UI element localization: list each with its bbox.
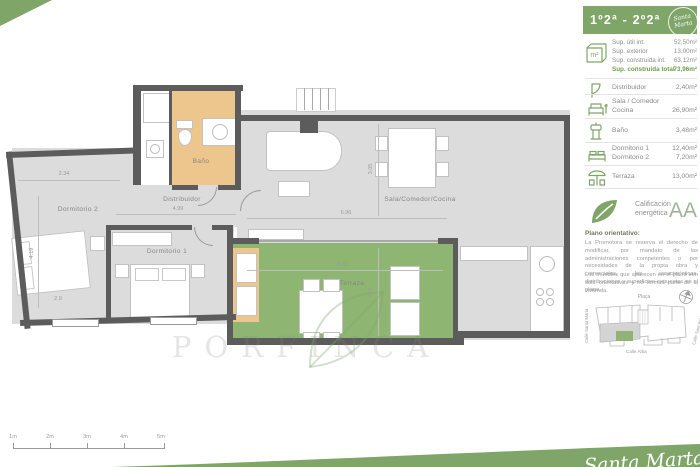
- energy-label: Calificación: [635, 201, 671, 208]
- dimension-label: 4.70: [337, 262, 348, 268]
- nightstand: [90, 236, 105, 251]
- wall-pillar: [300, 121, 318, 133]
- wall: [212, 225, 232, 230]
- window: [150, 317, 197, 325]
- room-row-value: 3,48m²: [655, 127, 697, 134]
- stove-burner: [536, 298, 544, 306]
- surface-value: 52,50m²: [655, 39, 697, 46]
- coffee-table: [278, 181, 310, 197]
- bed-dorm1: [130, 264, 190, 321]
- compass-icon: [680, 291, 693, 304]
- door-icon: [586, 80, 606, 100]
- divider: [585, 142, 697, 143]
- room-row-value: 2,40m²: [655, 84, 697, 91]
- surface-value: 13,00m²: [655, 48, 697, 55]
- dimension-line: [247, 270, 443, 271]
- nightstand: [115, 264, 129, 278]
- wall: [456, 331, 570, 338]
- room-row-value: 26,90m²: [655, 107, 697, 114]
- wall: [218, 185, 241, 190]
- room-row-value: 12,40m²: [655, 145, 697, 152]
- surface-value: 63,12m²: [655, 57, 697, 64]
- room-label-dormitorio2: Dormitorio 2: [58, 206, 98, 213]
- scale-label: 2m: [41, 434, 59, 440]
- surface-value-total: 73,96m²: [655, 66, 697, 73]
- sofa-icon: [586, 98, 608, 118]
- divider: [585, 188, 697, 189]
- svg-text:m²: m²: [590, 52, 599, 59]
- wall: [453, 243, 458, 338]
- wall: [235, 85, 241, 190]
- location-map: Plaça Calle Santa Marta Calle Sant Anton…: [582, 287, 700, 371]
- dining-chair: [375, 136, 388, 151]
- stairs: [296, 88, 336, 112]
- surface-label: Sup. exterior: [612, 48, 648, 55]
- dimension-line: [38, 196, 39, 308]
- dimension-label: 2.9: [54, 296, 62, 302]
- dimension-label: 3.05: [368, 164, 374, 175]
- nightstand: [191, 264, 205, 278]
- pillow: [135, 268, 159, 281]
- sink-basin: [212, 124, 228, 140]
- scale-label: 5m: [152, 434, 170, 440]
- wall: [564, 115, 570, 338]
- stair-tread: [320, 88, 321, 110]
- wardrobe-dorm1: [112, 232, 172, 246]
- wall: [233, 238, 259, 244]
- divider: [585, 94, 697, 95]
- map-street-left: Calle Santa Marta: [584, 308, 589, 343]
- kitchen-cabinet: [460, 246, 528, 261]
- room-row-name: Baño: [612, 127, 628, 134]
- energy-rating: AA: [669, 199, 697, 223]
- note-title: Plano orientativo:: [585, 230, 640, 237]
- wall: [106, 225, 111, 323]
- energy-label: energética: [635, 210, 668, 217]
- map-street-bottom: Calle Alba: [626, 349, 647, 354]
- room-row-name2: Cocina: [612, 107, 633, 114]
- wall: [169, 91, 172, 185]
- scale-label: 1m: [4, 434, 22, 440]
- shower: [143, 93, 170, 123]
- room-row-name: Sala / Comedor: [612, 98, 659, 105]
- stair-tread: [312, 88, 313, 110]
- dimension-line: [18, 180, 120, 181]
- room-row-name2: Dormitorio 2: [612, 154, 649, 161]
- stove-burner: [536, 288, 544, 296]
- wall: [133, 85, 243, 91]
- room-row-name: Distribuidor: [612, 84, 646, 91]
- dimension-label: 6.96: [341, 210, 352, 216]
- room-label-dormitorio1: Dormitorio 1: [147, 248, 187, 255]
- watermark-text: PORFINCA: [172, 330, 441, 364]
- room-row-name: Terraza: [612, 173, 635, 180]
- dimension-line: [378, 124, 379, 216]
- stair-tread: [328, 88, 329, 110]
- dimension-label: 4.19: [29, 248, 35, 259]
- floorplan-page: Dormitorio 2 Dormitorio 1 Distribuidor B…: [0, 0, 700, 467]
- dimension-label: 4.99: [173, 206, 184, 212]
- room-row-value: 13,00m²: [655, 173, 697, 180]
- wall: [133, 85, 141, 185]
- washbasin-icon: [586, 122, 606, 144]
- stove-burner: [546, 298, 554, 306]
- dining-table: [388, 128, 436, 188]
- wall: [172, 185, 198, 190]
- divider: [585, 78, 697, 79]
- room-label-bano: Baño: [193, 158, 210, 165]
- washer-drum: [150, 144, 160, 154]
- map-terrace-highlight: [616, 331, 633, 341]
- divider: [585, 165, 697, 166]
- pillow: [162, 268, 186, 281]
- dining-chair: [375, 162, 388, 177]
- window: [52, 319, 99, 327]
- room-label-distribuidor: Distribuidor: [163, 196, 201, 203]
- corner-ribbon: [0, 0, 52, 26]
- closet-box: [236, 253, 257, 283]
- room-row-name: Dormitorio 1: [612, 145, 649, 152]
- m2-icon: m²: [585, 42, 607, 66]
- sofa: [266, 131, 342, 171]
- energy-leaf-icon: [588, 196, 620, 226]
- divider: [585, 118, 697, 119]
- unit-title: 1º2ª - 2º2ª: [590, 13, 661, 27]
- parasol-icon: [586, 168, 608, 190]
- scale-label: 4m: [115, 434, 133, 440]
- dimension-line: [247, 218, 447, 219]
- room-row-value2: 7,20m²: [655, 154, 697, 161]
- dimension-line: [116, 214, 236, 215]
- toilet-tank: [176, 120, 193, 129]
- map-stair-core: [638, 310, 648, 324]
- map-street-right: Calle Sant Antoni: [691, 312, 700, 345]
- bed-icon: [586, 145, 608, 165]
- wall: [438, 238, 458, 244]
- wall: [237, 115, 570, 121]
- glass-door-line: [259, 240, 439, 242]
- dining-chair: [436, 162, 449, 177]
- stair-tread: [304, 88, 305, 110]
- dining-chair: [436, 136, 449, 151]
- kitchen-sink: [539, 256, 555, 272]
- stove-burner: [546, 288, 554, 296]
- scale-label: 3m: [78, 434, 96, 440]
- closet-box: [236, 286, 257, 316]
- wall: [106, 225, 192, 230]
- map-street-top: Plaça: [638, 294, 651, 300]
- surface-label: Sup. útil int.: [612, 39, 645, 46]
- room-label-sala: Sala/Comedor/Cocina: [384, 196, 455, 203]
- dimension-label: 2.34: [59, 171, 70, 177]
